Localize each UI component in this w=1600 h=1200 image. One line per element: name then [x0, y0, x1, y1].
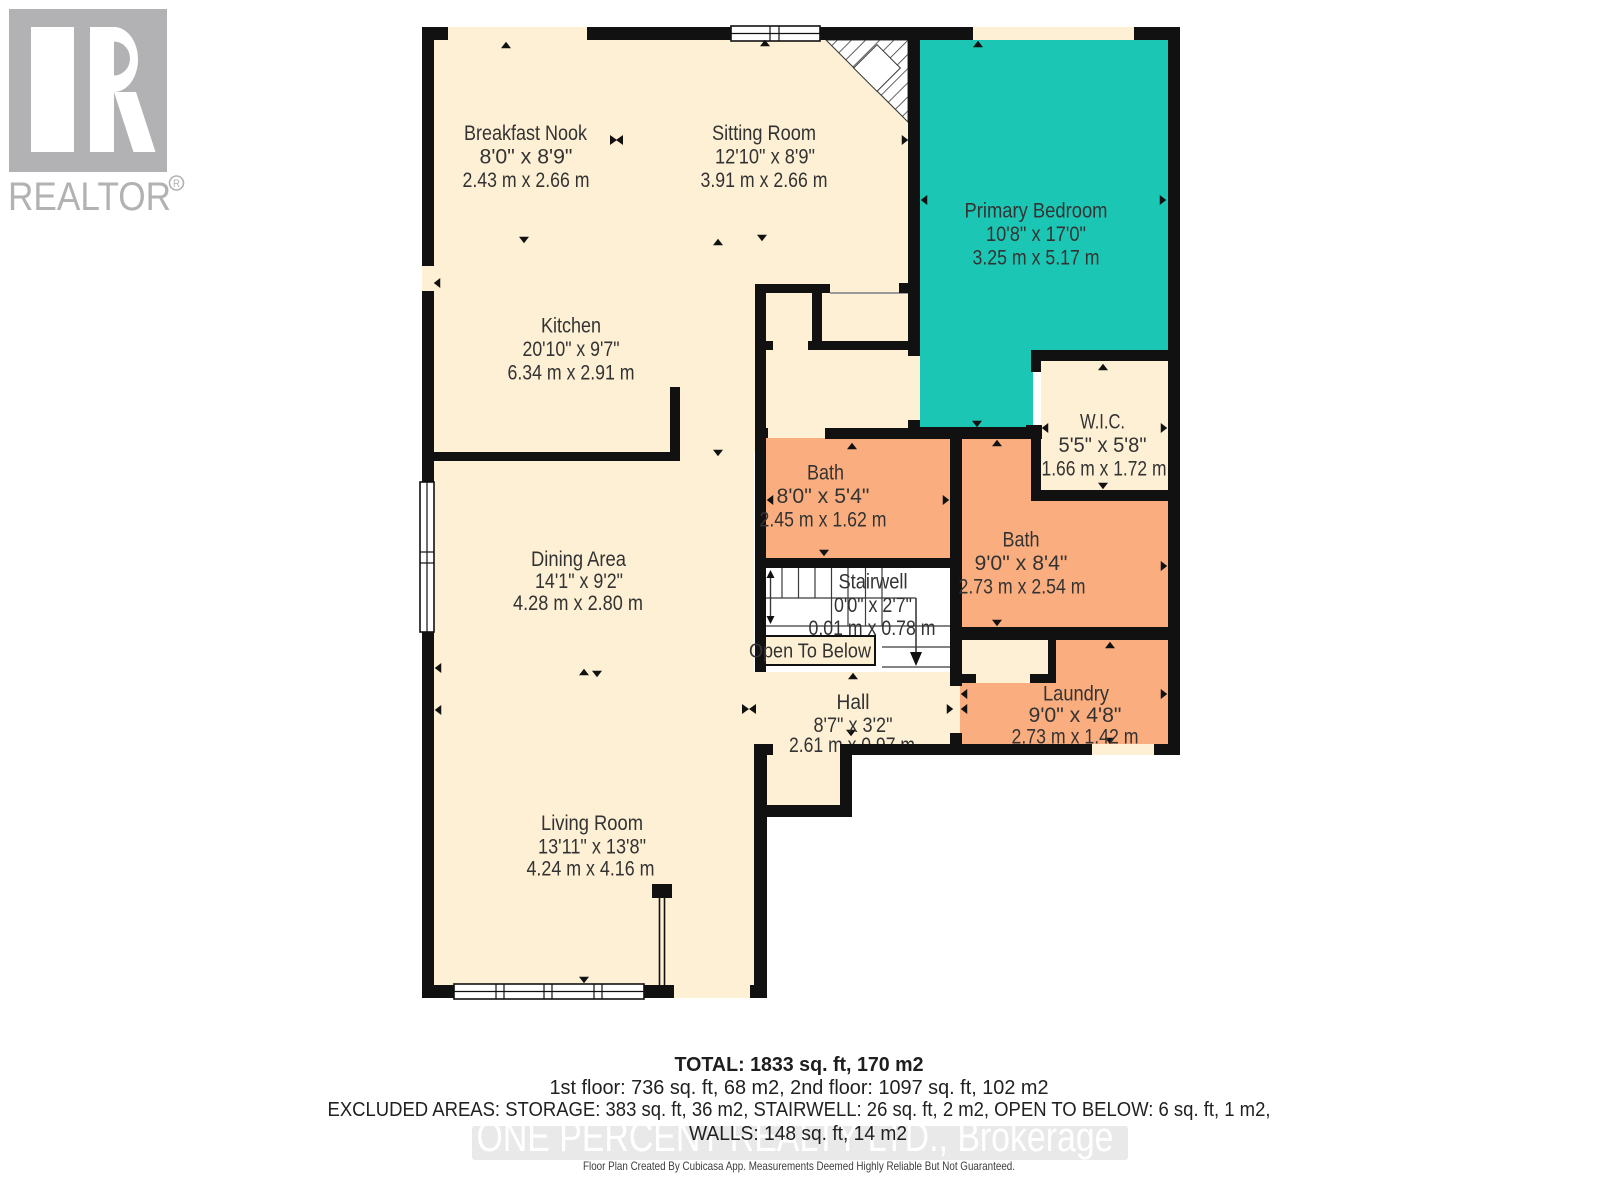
svg-text:2.73 m x 2.54 m: 2.73 m x 2.54 m: [959, 576, 1086, 599]
svg-text:WALLS: 148 sq. ft, 14 m2: WALLS: 148 sq. ft, 14 m2: [689, 1123, 907, 1145]
svg-text:Dining Area: Dining Area: [531, 548, 626, 571]
svg-text:Primary Bedroom: Primary Bedroom: [965, 200, 1108, 223]
svg-text:8'0" x 8'9": 8'0" x 8'9": [480, 146, 573, 169]
svg-text:10'8" x 17'0": 10'8" x 17'0": [986, 223, 1086, 246]
svg-text:4.28 m x 2.80 m: 4.28 m x 2.80 m: [513, 592, 643, 615]
svg-text:2.43 m x 2.66 m: 2.43 m x 2.66 m: [463, 169, 590, 192]
svg-text:8'0" x 5'4": 8'0" x 5'4": [777, 485, 870, 508]
svg-text:6.34 m x 2.91 m: 6.34 m x 2.91 m: [508, 362, 635, 385]
svg-text:2.73 m x 1.42 m: 2.73 m x 1.42 m: [1012, 726, 1139, 749]
svg-text:5'5" x 5'8": 5'5" x 5'8": [1059, 434, 1147, 457]
svg-text:EXCLUDED AREAS: STORAGE: 383 s: EXCLUDED AREAS: STORAGE: 383 sq. ft, 36 …: [328, 1099, 1271, 1121]
svg-text:13'11" x 13'8": 13'11" x 13'8": [538, 836, 646, 859]
svg-text:0.01 m x 0.78 m: 0.01 m x 0.78 m: [809, 617, 936, 640]
svg-text:Breakfast Nook: Breakfast Nook: [464, 122, 587, 145]
svg-text:W.I.C.: W.I.C.: [1080, 411, 1125, 434]
svg-text:Kitchen: Kitchen: [541, 315, 601, 338]
svg-text:Stairwell: Stairwell: [839, 571, 908, 594]
svg-text:8'7" x 3'2": 8'7" x 3'2": [814, 714, 893, 737]
svg-text:Bath: Bath: [807, 462, 844, 485]
svg-text:REALTOR: REALTOR: [8, 175, 171, 219]
svg-text:4.24 m x 4.16 m: 4.24 m x 4.16 m: [527, 858, 655, 881]
svg-text:2.45 m x 1.62 m: 2.45 m x 1.62 m: [760, 509, 887, 532]
svg-text:Hall: Hall: [837, 691, 870, 714]
svg-text:Bath: Bath: [1003, 529, 1040, 552]
svg-text:9'0" x 8'4": 9'0" x 8'4": [975, 552, 1068, 575]
svg-text:0'0" x 2'7": 0'0" x 2'7": [834, 594, 912, 617]
svg-text:Floor Plan Created By Cubicasa: Floor Plan Created By Cubicasa App. Meas…: [583, 1159, 1015, 1173]
svg-text:Open To Below: Open To Below: [749, 641, 871, 663]
svg-text:3.25 m x 5.17 m: 3.25 m x 5.17 m: [973, 247, 1100, 270]
svg-text:Living Room: Living Room: [541, 812, 643, 835]
svg-text:TOTAL: 1833 sq. ft, 170 m2: TOTAL: 1833 sq. ft, 170 m2: [675, 1054, 924, 1076]
svg-text:1.66 m x 1.72 m: 1.66 m x 1.72 m: [1042, 458, 1167, 481]
svg-text:12'10" x 8'9": 12'10" x 8'9": [715, 146, 815, 169]
svg-text:9'0" x 4'8": 9'0" x 4'8": [1029, 704, 1122, 727]
svg-text:14'1" x 9'2": 14'1" x 9'2": [535, 570, 623, 593]
svg-text:1st floor: 736 sq. ft, 68 m2,: 1st floor: 736 sq. ft, 68 m2, 2nd floor:…: [550, 1077, 1049, 1099]
svg-text:Sitting Room: Sitting Room: [712, 122, 816, 145]
svg-text:3.91 m x 2.66 m: 3.91 m x 2.66 m: [701, 169, 828, 192]
svg-text:20'10" x 9'7": 20'10" x 9'7": [523, 338, 620, 361]
svg-text:R: R: [173, 178, 180, 190]
svg-text:Laundry: Laundry: [1043, 683, 1109, 706]
